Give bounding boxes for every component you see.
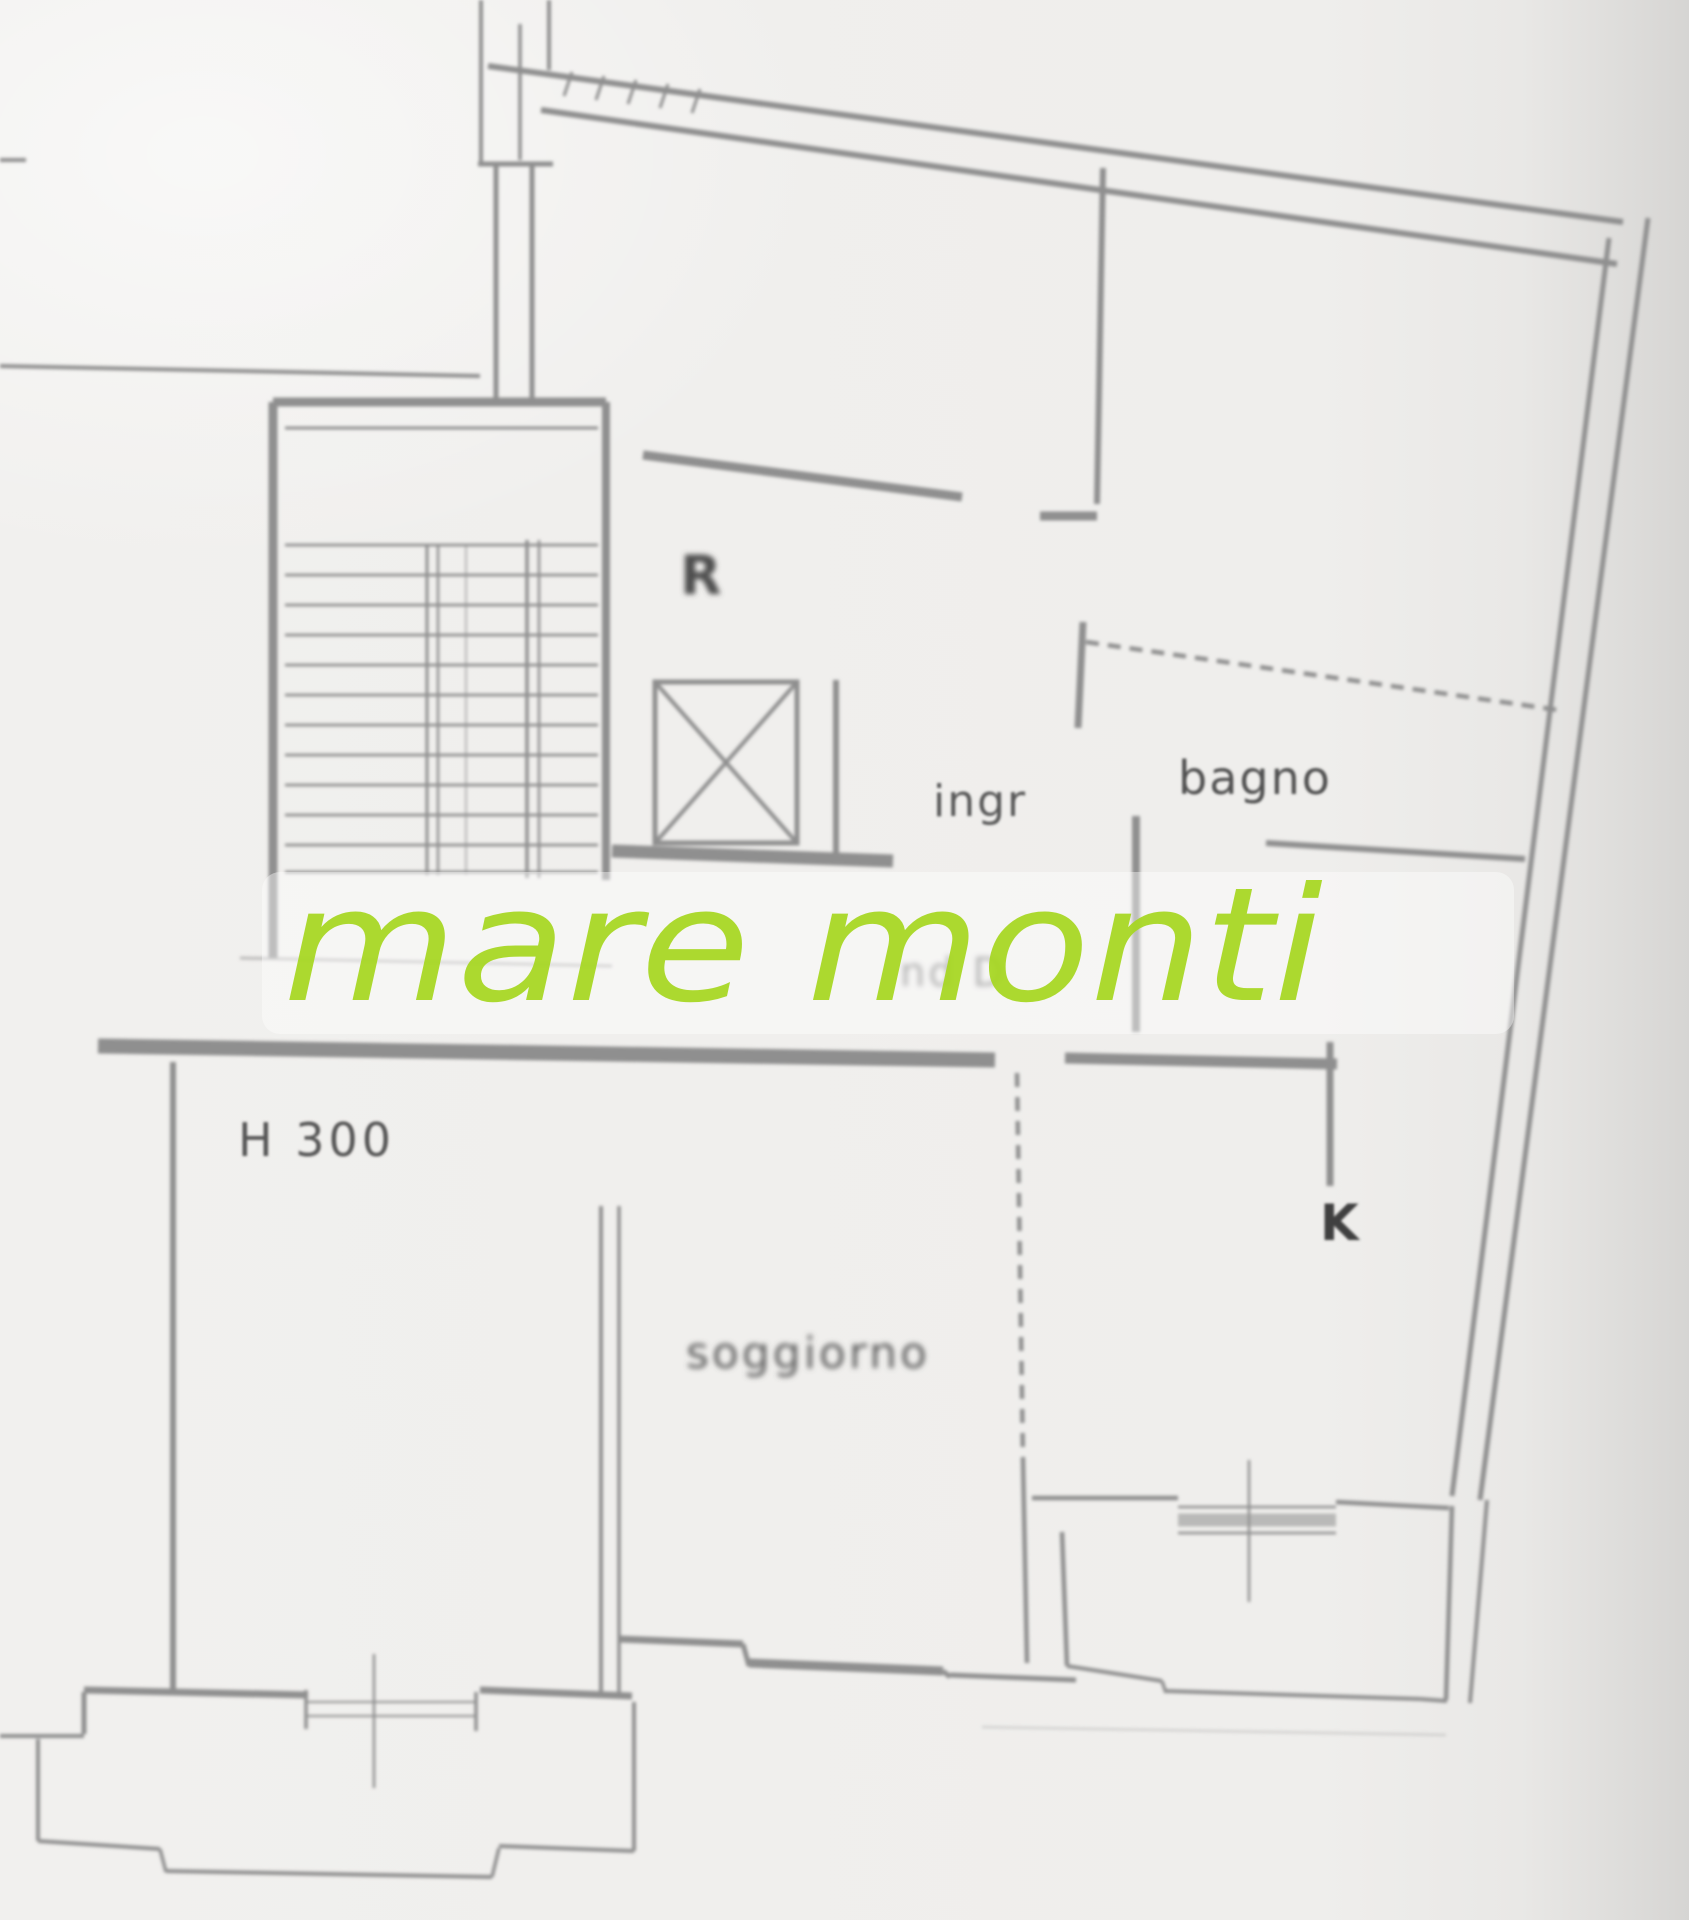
bedroom-balcony [38,1702,634,1877]
elevator-icon [655,682,797,843]
room-label-kitchen: K [1320,1194,1361,1252]
height-note-label: H 300 [238,1113,395,1167]
entry-shaft-walls [478,0,553,400]
watermark: mare monti [262,854,1514,1038]
watermark-text: mare monti [283,854,1323,1038]
kitchen-balcony [982,1500,1487,1735]
landing-wall [0,366,480,376]
stair-treads [285,545,598,872]
central-wall [98,1046,1337,1064]
room-label-living-room: soggiorno [686,1328,930,1379]
kitchen-walls [1032,1460,1449,1602]
top-exterior-wall [488,66,1623,264]
floor-plan: R ingr bagno nd D H 300 soggiorno K mare… [0,0,1689,1920]
room-label-entrance: ingr [933,776,1027,827]
room-label-bathroom: bagno [1178,751,1332,805]
entrance-hall-walls [643,168,1558,853]
scanned-floor-plan-page: R ingr bagno nd D H 300 soggiorno K mare… [0,0,1689,1920]
room-label-stairwell: R [680,544,722,607]
bedroom-walls [0,1062,632,1788]
